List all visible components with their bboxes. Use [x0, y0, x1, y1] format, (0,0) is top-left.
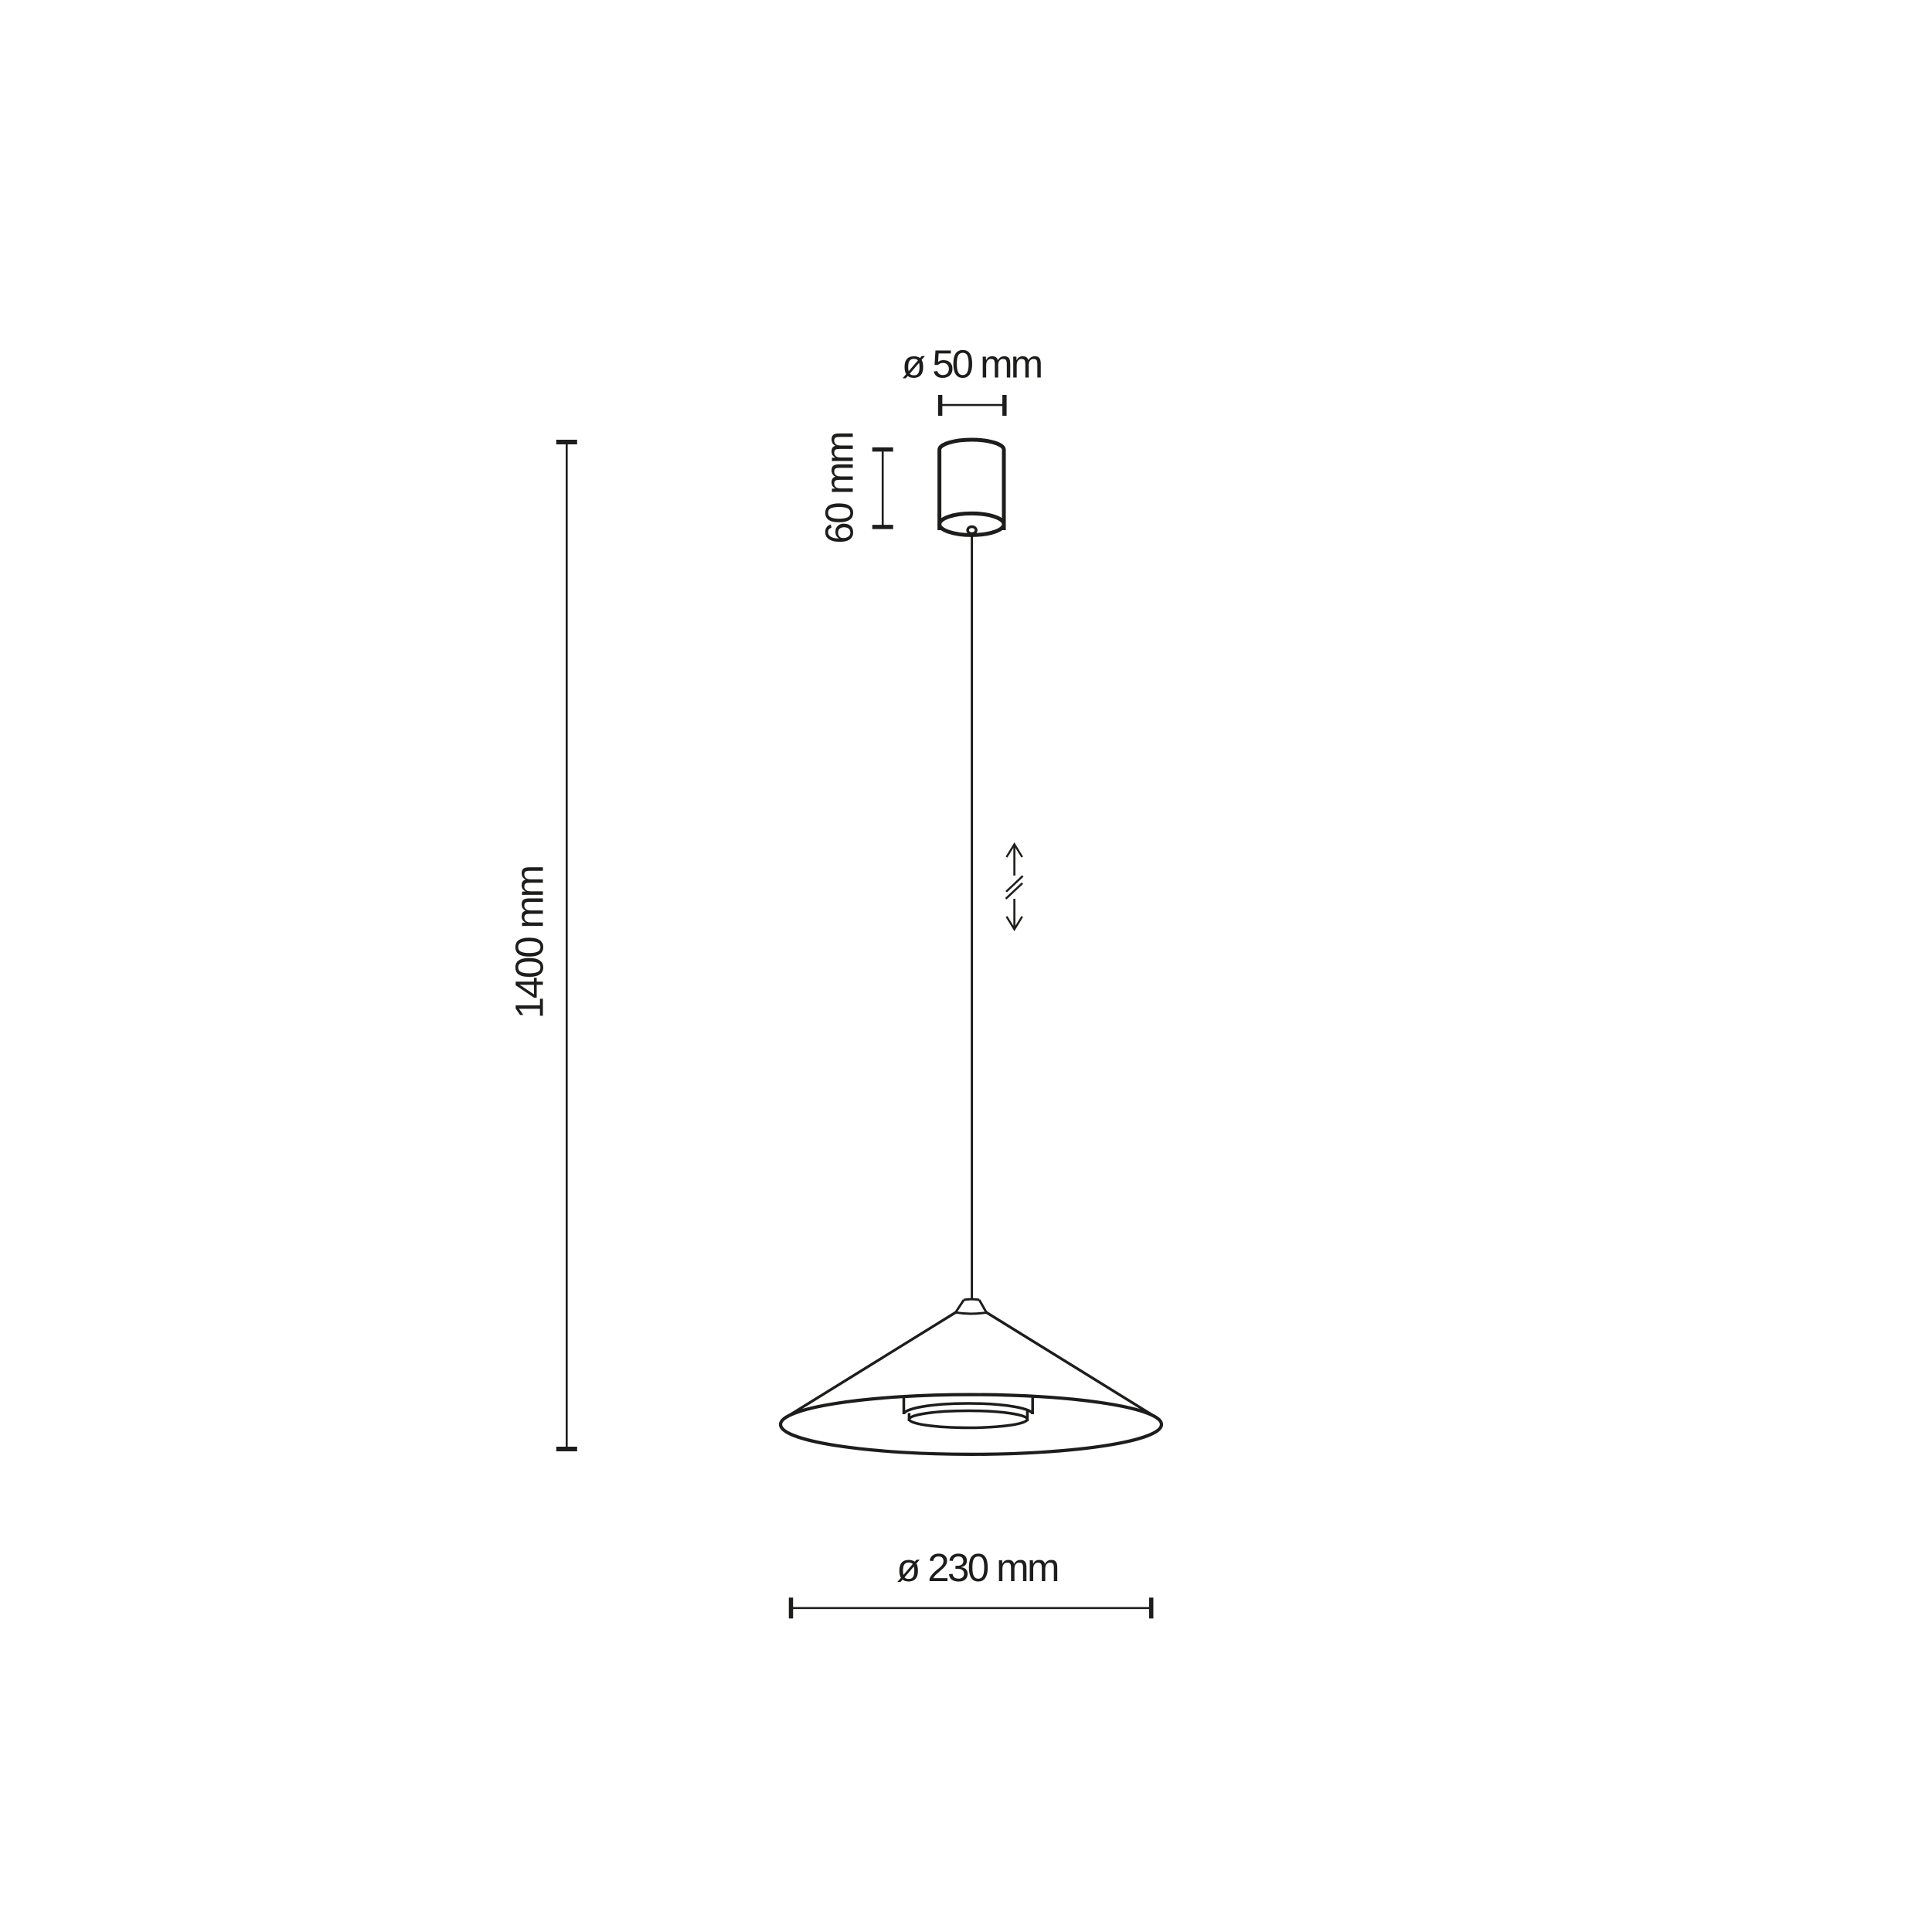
svg-text:ø 50 mm: ø 50 mm [902, 342, 1042, 386]
svg-text:1400 mm: 1400 mm [508, 866, 552, 1019]
svg-text:ø 230 mm: ø 230 mm [896, 1546, 1058, 1590]
svg-text:60 mm: 60 mm [818, 433, 862, 544]
